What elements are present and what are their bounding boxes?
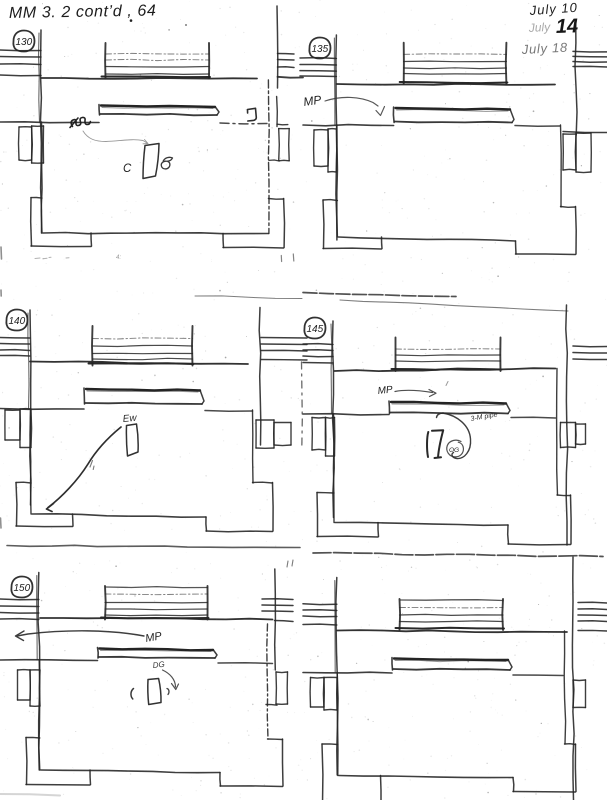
svg-text:MP: MP <box>377 384 393 397</box>
svg-text:135: 135 <box>312 44 329 55</box>
svg-text:DG: DG <box>152 660 165 670</box>
svg-text:July 18: July 18 <box>520 40 568 57</box>
svg-text:140: 140 <box>9 316 26 327</box>
svg-text:145: 145 <box>307 324 324 335</box>
svg-text:Ew: Ew <box>122 413 138 425</box>
svg-text:130: 130 <box>16 37 33 48</box>
svg-text:4:: 4: <box>116 255 121 261</box>
svg-text:July: July <box>527 20 551 35</box>
svg-text:MM 3. 2 cont’d , 64: MM 3. 2 cont’d , 64 <box>9 2 157 22</box>
svg-text:MP: MP <box>302 93 322 109</box>
svg-text:OG: OG <box>449 447 459 454</box>
svg-text:150: 150 <box>14 583 31 594</box>
svg-text:C: C <box>123 163 132 175</box>
svg-text:14: 14 <box>555 15 578 38</box>
svg-text:MP: MP <box>144 630 163 645</box>
